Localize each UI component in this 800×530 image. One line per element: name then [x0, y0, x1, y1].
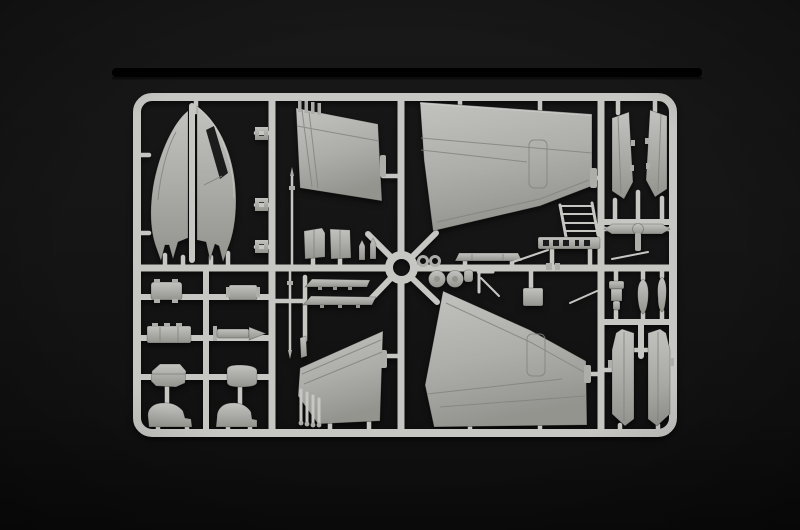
photo-stage	[0, 0, 800, 530]
vignette	[0, 0, 800, 530]
sprue-photo	[0, 0, 800, 530]
